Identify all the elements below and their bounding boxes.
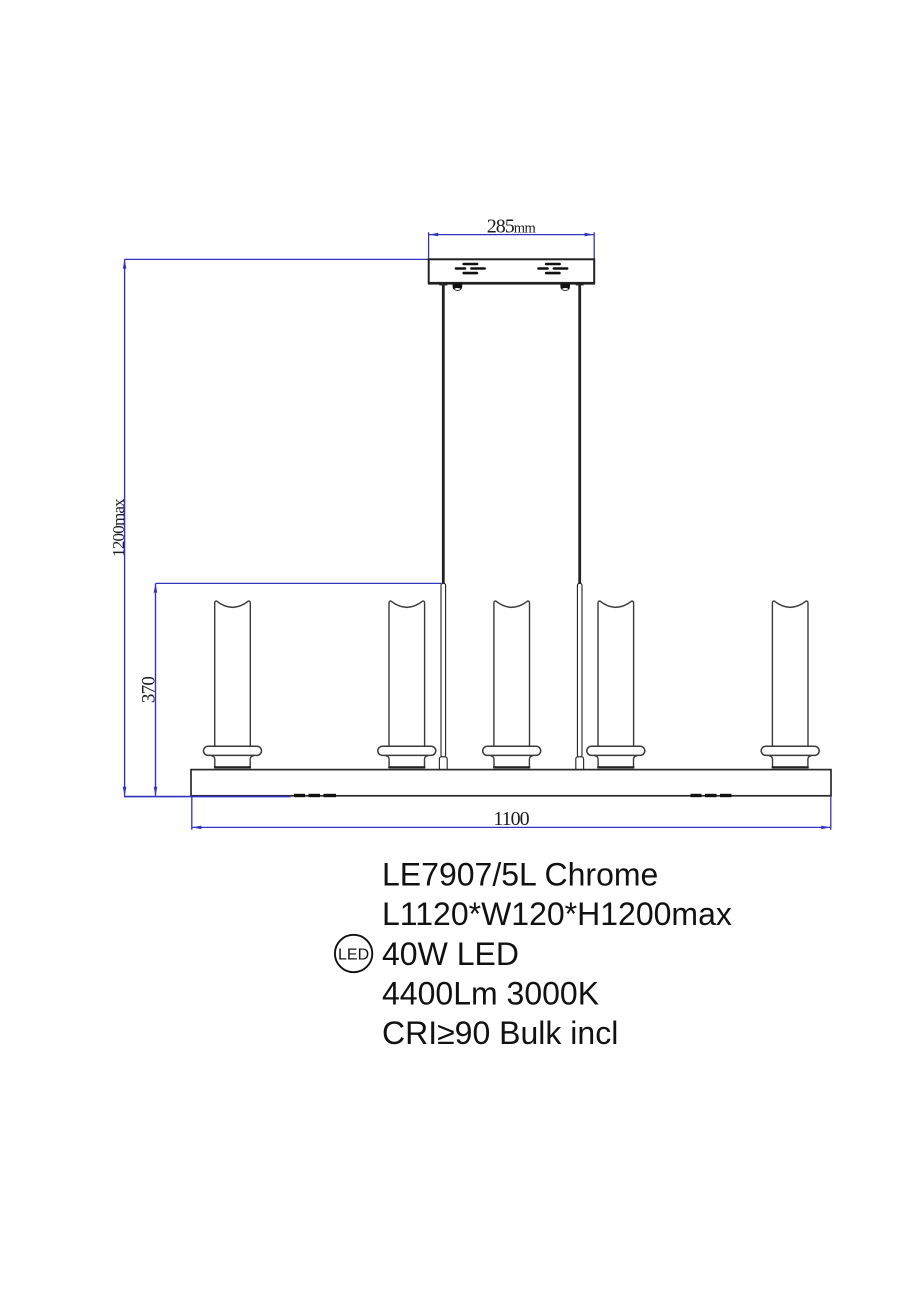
svg-text:CRI≥90 Bulk incl: CRI≥90 Bulk incl	[382, 1015, 618, 1051]
svg-text:1200max: 1200max	[109, 498, 128, 557]
svg-text:LED: LED	[338, 946, 369, 963]
svg-text:370: 370	[139, 677, 160, 703]
svg-text:LE7907/5L Chrome: LE7907/5L Chrome	[382, 857, 658, 893]
svg-text:L1120*W120*H1200max: L1120*W120*H1200max	[382, 896, 732, 932]
svg-text:4400Lm 3000K: 4400Lm 3000K	[382, 975, 599, 1011]
svg-text:1100: 1100	[493, 808, 529, 830]
svg-text:40W LED: 40W LED	[382, 936, 519, 972]
